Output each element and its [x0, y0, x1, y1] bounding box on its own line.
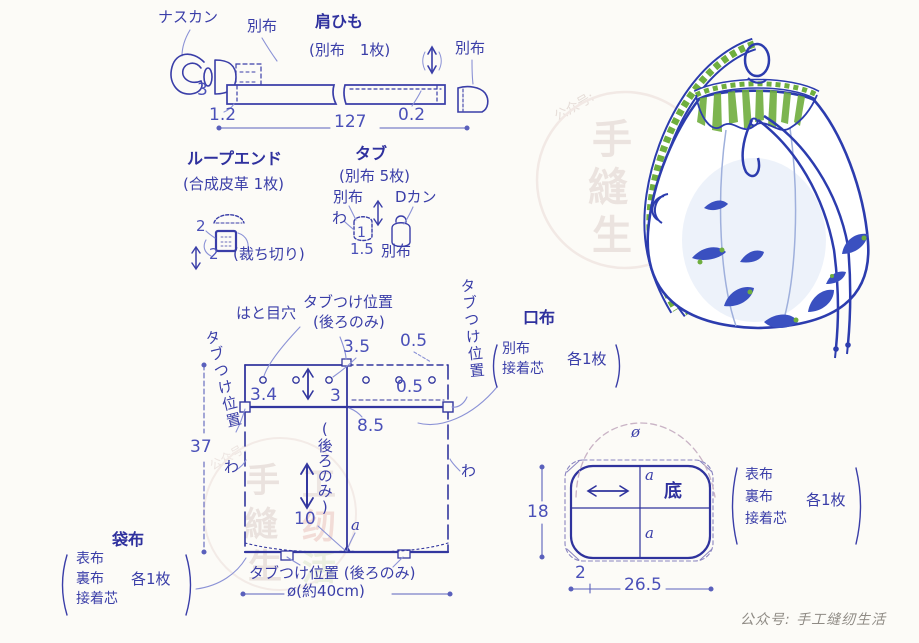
- strap-title: 肩ひも: [315, 13, 363, 31]
- dim-34: 3.4: [250, 386, 277, 405]
- d-ring-label: Dカン: [395, 189, 437, 206]
- fabric-list-line: 表布: [745, 468, 773, 484]
- fabric-list-line: 接着芯: [76, 592, 118, 608]
- point-a-label: a: [645, 467, 654, 484]
- tab-position-top-label: タブつけ位置: [303, 294, 393, 311]
- loop-end-count-label: (合成皮革 1枚): [183, 176, 284, 193]
- nasukan-label: ナスカン: [158, 9, 218, 26]
- leader-curves: [236, 327, 497, 567]
- eyelet-label: はと目穴: [236, 305, 296, 322]
- bag-illustration: [648, 44, 869, 358]
- back-only-label: (後ろのみ): [316, 420, 333, 516]
- bag-body-pattern-piece: [202, 327, 497, 596]
- dim-265: 26.5: [624, 576, 662, 595]
- pattern-sheet: 公众号: 手 工 縫 纫 生 活 公众号: 手 工 縫 纫 生 活: [0, 0, 919, 643]
- tab-position-top-label2: (後ろのみ): [313, 314, 385, 331]
- bag-fabric-title: 袋布: [112, 531, 144, 549]
- fabric-label: 別布: [333, 189, 363, 206]
- fabric-count-label: 各1枚: [806, 492, 846, 509]
- fold-label: わ: [332, 210, 347, 227]
- dim-strap-length: 127: [334, 113, 366, 132]
- dim-diameter-label: ø(約40cm): [287, 583, 365, 600]
- fabric-label: 別布: [247, 18, 277, 35]
- dim-loop-end-h: 2: [209, 246, 219, 263]
- fabric-list-line: 接着芯: [745, 512, 787, 528]
- dim-05-mid: 0.5: [396, 378, 423, 397]
- fold-label: わ: [461, 463, 476, 480]
- dim-tab-15: 1.5: [350, 241, 374, 258]
- dim-loop-end-w: 2: [196, 218, 206, 235]
- dim-3: 3: [330, 387, 341, 406]
- point-a-label: a: [351, 517, 360, 534]
- tab-position-mark: [342, 359, 351, 366]
- point-a-label: a: [645, 525, 654, 542]
- fabric-count-label: 各1枚: [567, 351, 607, 368]
- bottom-piece-title: 底: [664, 482, 682, 502]
- dim-85: 8.5: [357, 417, 384, 436]
- mouth-fabric-title: 口布: [523, 309, 555, 327]
- fabric-count-label: 各1枚: [131, 571, 171, 588]
- strap-band-left: [227, 85, 336, 104]
- fold-label: わ: [224, 459, 239, 476]
- dim-2: 2: [575, 564, 586, 583]
- fabric-label: 別布: [455, 40, 485, 57]
- fabric-list-line: 裏布: [76, 572, 104, 588]
- dim-05-top: 0.5: [400, 332, 427, 351]
- tab-position-mark: [281, 551, 293, 560]
- dim-35: 3.5: [343, 338, 370, 357]
- bottom-pattern-piece: [540, 423, 715, 593]
- tab-title: タブ: [355, 145, 387, 163]
- bottom-diameter-label: ø: [631, 424, 640, 441]
- fabric-list-line: 裏布: [745, 490, 773, 506]
- tab-count-label: (別布 5枚): [339, 168, 410, 185]
- dim-37: 37: [190, 438, 212, 457]
- dim-18: 18: [527, 503, 549, 522]
- strap-band-right: [344, 85, 445, 104]
- dim-strap-fold: 1.2: [209, 106, 236, 125]
- dim-strap-stitch: 0.2: [398, 106, 425, 125]
- dim-10: 10: [294, 510, 316, 529]
- note-parentheses: [63, 345, 861, 615]
- fabric-list-line: 接着芯: [502, 362, 544, 378]
- fabric-list-line: 表布: [76, 552, 104, 568]
- watermark-credit: 公众号: 手工缝纫生活: [740, 609, 886, 629]
- tab-position-bottom-label: タブつけ位置 (後ろのみ): [249, 565, 415, 582]
- strap-loop: [745, 44, 769, 76]
- loop-end-title: ループエンド: [187, 150, 282, 168]
- fabric-label: 別布: [381, 243, 411, 260]
- loop-end-note: (裁ち切り): [233, 246, 305, 263]
- fabric-list-line: 別布: [502, 342, 530, 358]
- dim-strap-height: 3: [197, 81, 208, 100]
- strap-count-label: (別布 1枚): [309, 42, 390, 59]
